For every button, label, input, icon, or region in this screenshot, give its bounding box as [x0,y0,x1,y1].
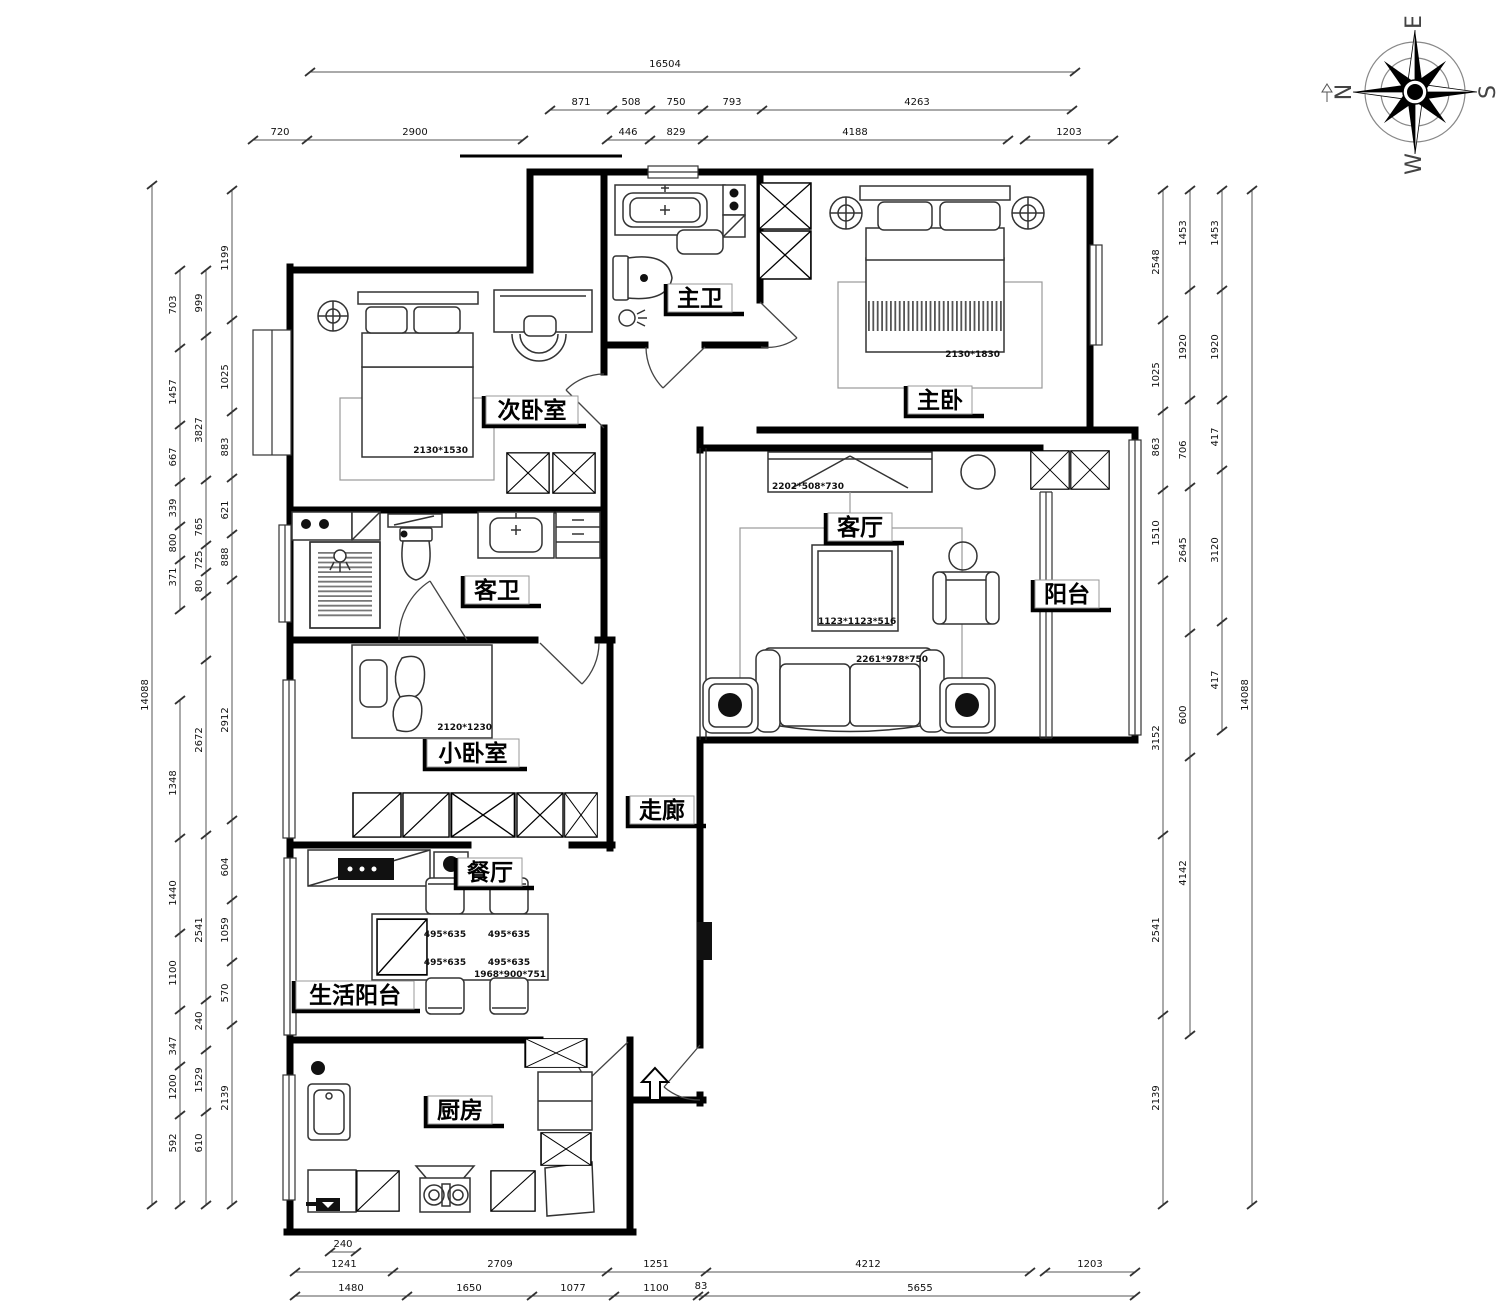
chair-size-annotation: 495*635 [488,930,530,940]
svg-text:883: 883 [220,437,231,456]
window-master-bedroom [1090,245,1102,345]
svg-text:1199: 1199 [220,245,231,270]
svg-text:主卧: 主卧 [917,388,963,414]
highchair-diagonal [377,919,427,975]
svg-text:888: 888 [220,547,231,566]
svg-text:2139: 2139 [220,1085,231,1110]
dim-left: 14088 703 1457 667 339 800 371 1348 1440… [140,181,237,1209]
balcony-cabinet-cell [1031,451,1069,489]
svg-text:793: 793 [722,97,741,108]
chair-size-annotation: 495*635 [424,958,466,968]
svg-text:1920: 1920 [1178,334,1189,359]
svg-text:厨房: 厨房 [437,1097,483,1124]
svg-text:417: 417 [1210,427,1221,446]
kitchen-cabinet-cell [525,1039,586,1068]
svg-text:800: 800 [168,533,179,552]
coffee-table-size-annotation: 1123*1123*516 [818,617,896,627]
svg-text:2672: 2672 [194,727,205,752]
master-closet-upper [759,183,811,229]
door-master-bath [646,347,705,388]
svg-text:829: 829 [666,127,685,138]
door-master-bedroom [760,302,797,347]
svg-text:80: 80 [194,580,205,593]
svg-text:863: 863 [1151,437,1162,456]
svg-text:次卧室: 次卧室 [498,397,567,424]
mirror [388,514,442,527]
svg-text:1251: 1251 [643,1259,668,1270]
room-label-master-bath: 主卫 [666,284,744,314]
svg-text:667: 667 [168,447,179,466]
svg-text:765: 765 [194,517,205,536]
svg-text:240: 240 [333,1239,352,1250]
window-master-bath [648,166,698,178]
room-label-guest-bath: 客卫 [463,576,541,606]
wardrobe-cell [451,793,514,837]
light-symbol-icon [619,310,647,326]
shower-head-icon [334,550,346,562]
bedside-lamp-icon [830,197,862,229]
svg-text:2709: 2709 [487,1259,512,1270]
compass-n: N [1332,84,1357,100]
guest-vanity [478,512,554,558]
dining-cabinet [308,850,430,886]
entrance-arrow-icon [642,1068,668,1100]
svg-text:2548: 2548 [1151,249,1162,274]
room-label-small-bedroom: 小卧室 [425,739,527,769]
svg-text:1650: 1650 [456,1283,481,1294]
room-label-service-balcony: 生活阳台 [294,981,420,1011]
pillow [414,307,460,333]
svg-text:1025: 1025 [1151,362,1162,387]
armchair [933,572,999,624]
bed-second [358,292,478,457]
compass-w: W [1402,153,1427,175]
kitchen-sink [308,1084,350,1140]
svg-text:1440: 1440 [168,880,179,905]
fridge [545,1162,594,1216]
shower [310,542,380,628]
svg-text:2912: 2912 [220,707,231,732]
svg-text:阳台: 阳台 [1044,581,1090,608]
svg-text:客厅: 客厅 [837,514,883,541]
bath-shelf [677,230,723,254]
svg-text:4188: 4188 [842,127,867,138]
wardrobe-cell [353,793,401,837]
window-kitchen [283,1075,295,1200]
svg-text:621: 621 [220,500,231,519]
svg-text:446: 446 [618,127,637,138]
window-balcony-outer [1129,440,1141,735]
dim-bottom: 240 1241 2709 1251 4212 1203 1480 1650 1… [290,1239,1140,1300]
living-room-furniture: 2202*508*730 1123*1123*516 2261*978*750 [703,452,999,733]
drain-icon [311,1061,325,1075]
svg-text:600: 600 [1178,705,1189,724]
toilet-guest [400,528,432,580]
svg-text:4212: 4212 [855,1259,880,1270]
svg-text:1203: 1203 [1077,1259,1102,1270]
room-label-kitchen: 厨房 [426,1096,504,1126]
compass-s: S [1476,85,1500,99]
svg-text:999: 999 [194,293,205,312]
door-guest-bath [399,581,467,640]
svg-text:1241: 1241 [331,1259,356,1270]
blanket-fold [395,656,424,698]
compass-e: E [1402,15,1427,29]
compass-rose: N E S W [1322,15,1500,175]
master-closet-lower [759,231,811,279]
svg-text:703: 703 [168,295,179,314]
svg-text:725: 725 [194,550,205,569]
balcony-sliding-door [1040,492,1052,738]
svg-text:1025: 1025 [220,364,231,389]
dining-chair [426,978,464,1014]
svg-text:1457: 1457 [168,379,179,404]
counter-cell [491,1171,535,1211]
room-label-corridor: 走廊 [628,796,706,826]
svg-text:1059: 1059 [220,917,231,942]
svg-text:1453: 1453 [1178,220,1189,245]
room-label-living-room: 客厅 [826,513,904,543]
svg-text:1100: 1100 [168,960,179,985]
svg-text:客卫: 客卫 [474,577,520,604]
svg-text:1920: 1920 [1210,334,1221,359]
svg-text:240: 240 [194,1011,205,1030]
counter-cell [357,1171,399,1211]
dim-top: 16504 871 508 750 793 4263 720 2900 446 … [248,59,1118,144]
svg-text:347: 347 [168,1036,179,1055]
svg-text:主卫: 主卫 [677,286,723,312]
svg-text:生活阳台: 生活阳台 [309,982,401,1009]
window-second-bedroom [253,330,291,455]
window-guest-bath [279,525,291,622]
room-label-second-bedroom: 次卧室 [484,396,586,426]
table-size-annotation: 1968*900*751 [474,970,546,980]
blanket-fold [393,696,422,732]
svg-text:走廊: 走廊 [639,797,685,824]
svg-text:4142: 4142 [1178,860,1189,885]
floor-plan-drawing: 2130*1830 2130*1530 [0,0,1500,1307]
dining-chair [490,978,528,1014]
tv-cabinet-size-annotation: 2202*508*730 [772,482,844,492]
svg-text:1348: 1348 [168,770,179,795]
svg-text:83: 83 [695,1281,708,1292]
chair-size-annotation: 495*635 [424,930,466,940]
chair-size-annotation: 495*635 [488,958,530,968]
svg-text:508: 508 [621,97,640,108]
side-table [703,678,758,733]
side-table [940,678,995,733]
svg-text:1480: 1480 [338,1283,363,1294]
bath-shelf-diagonal [723,215,745,237]
master-bedroom-furniture: 2130*1830 [830,186,1044,388]
floor-plan-page: 2130*1830 2130*1530 [0,0,1500,1307]
pillow [366,307,407,333]
svg-text:871: 871 [571,97,590,108]
second-bedroom-furniture: 2130*1530 [318,290,595,493]
sofa-size-annotation: 2261*978*750 [856,655,928,665]
svg-text:2541: 2541 [194,917,205,942]
counter-diagonal [352,512,380,540]
kitchen-tall-cabinet [538,1072,592,1130]
svg-text:5655: 5655 [907,1283,932,1294]
svg-text:4263: 4263 [904,97,929,108]
svg-text:1453: 1453 [1210,220,1221,245]
svg-text:3827: 3827 [194,417,205,442]
svg-text:1203: 1203 [1056,127,1081,138]
stool-icon [949,542,977,570]
svg-text:1100: 1100 [643,1283,668,1294]
svg-text:餐厅: 餐厅 [467,860,513,886]
svg-text:3152: 3152 [1151,725,1162,750]
declination-mark-icon [1322,84,1332,102]
wardrobe-cell [403,793,449,837]
bed-size-annotation: 2130*1830 [945,350,1000,360]
svg-text:417: 417 [1210,670,1221,689]
pillow [360,660,387,707]
pillow [940,202,1000,230]
svg-text:610: 610 [194,1133,205,1152]
svg-text:604: 604 [220,857,231,876]
svg-text:16504: 16504 [649,59,681,70]
bed-master [860,186,1010,352]
balcony-cabinet-cell [1071,451,1109,489]
wardrobe-cell [517,793,563,837]
svg-text:3120: 3120 [1210,537,1221,562]
svg-text:750: 750 [666,97,685,108]
svg-text:1529: 1529 [194,1067,205,1092]
bed-size-annotation: 2120*1230 [437,723,492,733]
room-label-master-bedroom: 主卧 [906,386,984,416]
svg-text:14088: 14088 [1240,679,1251,711]
svg-text:14088: 14088 [140,679,151,711]
pillow [878,202,932,230]
svg-text:706: 706 [1178,440,1189,459]
bedside-lamp-icon [1012,197,1044,229]
svg-text:2900: 2900 [402,127,427,138]
drawer-cabinet [556,512,600,558]
bed-size-annotation: 2130*1530 [413,446,468,456]
dim-right: 2548 1025 863 1510 3152 2541 2139 1453 1… [1151,186,1257,1209]
balcony-furniture [1031,451,1109,489]
svg-text:2139: 2139 [1151,1085,1162,1110]
kitchen-cabinet-cell [541,1133,591,1166]
svg-text:720: 720 [270,127,289,138]
door-entrance [664,1045,700,1100]
wardrobe-cell [565,793,598,837]
svg-text:592: 592 [168,1133,179,1152]
window-small-bedroom [283,680,295,838]
electrical-box [697,922,712,960]
wardrobe-cell [507,453,549,493]
svg-text:小卧室: 小卧室 [439,740,508,767]
room-label-dining-room: 餐厅 [456,858,534,888]
guest-bath-furniture [292,512,600,628]
svg-text:2541: 2541 [1151,917,1162,942]
svg-text:1077: 1077 [560,1283,585,1294]
svg-text:2645: 2645 [1178,537,1189,562]
bedside-lamp-icon [318,301,348,331]
svg-text:1510: 1510 [1151,520,1162,545]
svg-text:570: 570 [220,983,231,1002]
wardrobe-cell [553,453,595,493]
svg-text:371: 371 [168,567,179,586]
svg-text:339: 339 [168,498,179,517]
svg-text:1200: 1200 [168,1074,179,1099]
plant-icon [961,455,995,489]
bath-counter-cabinet [292,512,352,540]
door-small-bedroom [540,643,599,684]
room-label-balcony: 阳台 [1033,580,1111,610]
toilet-master [613,256,672,300]
stove [416,1166,474,1212]
